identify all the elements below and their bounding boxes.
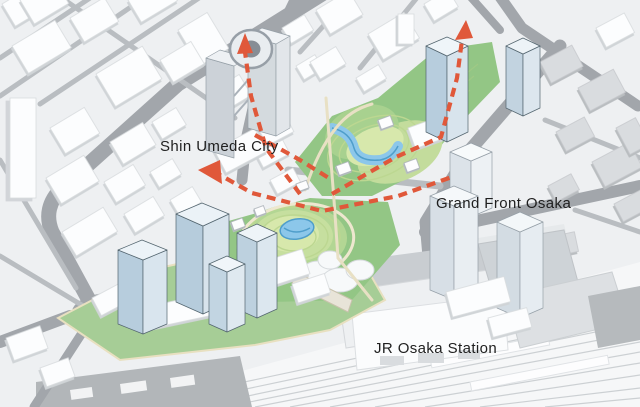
masterplan-illustration: Shin Umeda City Grand Front Osaka JR Osa… [0, 0, 640, 407]
arrow-northeast-icon [455, 20, 473, 40]
label-grand-front-osaka: Grand Front Osaka [436, 195, 571, 212]
arrow-west-icon [198, 160, 222, 184]
masterplan-canvas: Shin Umeda City Grand Front Osaka JR Osa… [0, 0, 640, 407]
label-shin-umeda-city: Shin Umeda City [160, 138, 279, 155]
label-jr-osaka-station: JR Osaka Station [374, 340, 497, 357]
